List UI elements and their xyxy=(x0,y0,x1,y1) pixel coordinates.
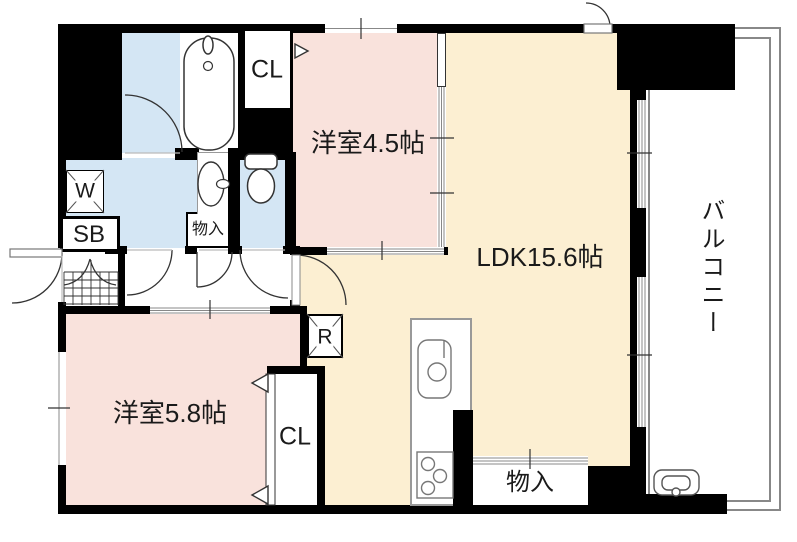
entrance-tile-grid xyxy=(64,259,118,305)
storage-kitchen-label: 物入 xyxy=(506,471,554,495)
wall xyxy=(397,24,585,33)
wall xyxy=(118,253,125,306)
closet-lower-door-panel xyxy=(266,374,275,505)
sliding-door-western58 xyxy=(150,306,270,314)
refrigerator-label: R xyxy=(316,327,333,348)
shoebox-label: SB xyxy=(73,223,105,247)
room-ldk-floor xyxy=(446,33,630,255)
wall xyxy=(58,302,66,352)
window-right-upper xyxy=(637,100,647,208)
room-label-western-45: 洋室4.5帖 xyxy=(311,130,425,156)
storage-hall-label: 物入 xyxy=(192,222,224,238)
floorplan: 洋室4.5帖 LDK15.6帖 洋室5.8帖 バルコニー CL CL SB W … xyxy=(0,0,797,542)
closet-lower-label: CL xyxy=(279,425,311,450)
washroom-door-arc xyxy=(127,250,172,295)
washer-label: W xyxy=(74,181,96,202)
partition-pocket xyxy=(437,33,446,87)
bathroom-floor xyxy=(122,33,180,153)
toilet-floor xyxy=(240,153,286,248)
room-label-western-58: 洋室5.8帖 xyxy=(113,400,227,426)
ldk-entry-door-panel xyxy=(584,24,612,33)
wall xyxy=(628,494,727,514)
wall xyxy=(58,465,66,507)
window-top xyxy=(325,24,397,33)
toilet-door-arc xyxy=(240,250,288,298)
closet-upper-label: CL xyxy=(251,58,283,83)
ldk-entry-door-arc xyxy=(586,3,610,27)
wall xyxy=(58,24,122,160)
sliding-door-western45 xyxy=(327,247,444,255)
entrance-door-arc xyxy=(12,253,62,303)
window-left xyxy=(54,352,64,465)
wall xyxy=(588,466,638,514)
partition-track xyxy=(437,87,446,247)
wall xyxy=(58,505,642,514)
entrance-door-panel xyxy=(10,249,62,257)
room-label-ldk: LDK15.6帖 xyxy=(476,244,603,270)
storage-hall-door-arc xyxy=(197,252,232,287)
wall xyxy=(285,152,296,248)
bathtub-icon xyxy=(184,36,234,150)
wall xyxy=(175,148,199,160)
wall xyxy=(122,24,325,33)
window-right-lower xyxy=(637,277,647,427)
room-label-balcony: バルコニー xyxy=(698,198,722,338)
sink-nook xyxy=(197,152,228,214)
room-western-58-notch xyxy=(267,314,300,366)
wall xyxy=(453,410,473,506)
wall xyxy=(228,246,242,254)
wall xyxy=(300,306,307,366)
wall xyxy=(317,366,325,505)
